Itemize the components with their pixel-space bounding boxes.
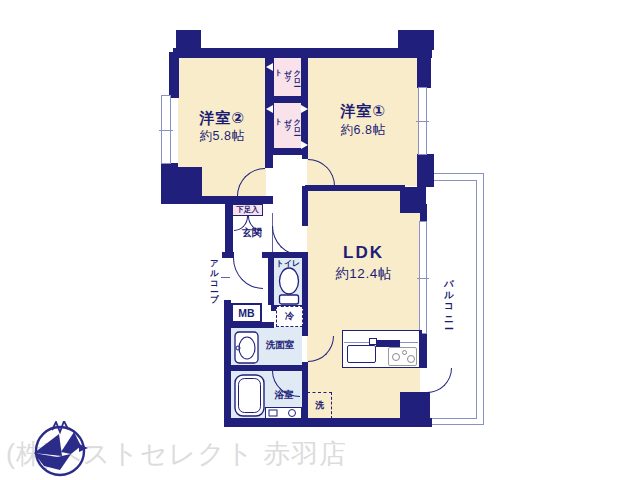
closet-notch <box>301 141 308 149</box>
alcove-label: アルコーブ <box>209 254 219 298</box>
closet-notch <box>266 105 273 113</box>
wall-segment <box>224 418 432 427</box>
entrance-label: 玄関 <box>233 227 271 239</box>
bathtub-icon <box>234 374 265 417</box>
bedroom1-window <box>418 87 427 155</box>
washroom-label: 洗面室 <box>257 340 303 351</box>
washbasin-icon <box>234 331 259 364</box>
refrigerator-space: 冷 <box>276 306 303 327</box>
wall-segment <box>176 30 201 50</box>
bathroom-label: 浴室 <box>262 390 306 401</box>
front-door <box>233 258 263 289</box>
bedroom1-area: 約6.8帖 <box>307 123 419 137</box>
wall-segment <box>169 52 179 98</box>
closet-lower: クローゼット <box>273 102 302 149</box>
ldk-floor <box>307 191 420 419</box>
meter-box-label: MB <box>238 307 254 319</box>
bedroom2-area: 約5.8帖 <box>178 129 266 143</box>
wall-segment <box>224 300 231 422</box>
bath-vanity-icon <box>265 407 302 419</box>
toilet-label: トイレ <box>274 259 302 268</box>
washer-space: 洗 <box>307 392 332 419</box>
toilet-icon <box>277 266 301 308</box>
bedroom1-name: 洋室① <box>307 102 419 119</box>
kitchen-sink <box>347 345 376 363</box>
wall-segment <box>265 196 273 204</box>
meter-box: MB <box>231 303 262 323</box>
closet-upper: クローゼット <box>273 57 302 97</box>
kitchen-divider <box>376 340 400 347</box>
stove-burner-icon <box>402 350 407 355</box>
wall-segment <box>420 204 427 221</box>
bestselect-crane-logo <box>29 421 89 479</box>
closet-lower-label: クローゼット <box>273 113 302 139</box>
wall-segment <box>176 196 273 204</box>
ldk-name: LDK <box>307 243 420 263</box>
refrigerator-label: 冷 <box>285 310 294 323</box>
wall-segment <box>417 55 431 88</box>
alcove-pointer-line <box>221 277 230 278</box>
closet-upper-label: クローゼット <box>273 64 302 90</box>
shoe-cabinet: 下足入 <box>232 204 263 216</box>
ldk-window <box>419 221 427 334</box>
stove-burner-icon <box>407 355 415 363</box>
bedroom2-name: 洋室② <box>178 109 266 126</box>
wall-segment <box>302 186 308 226</box>
ldk-area: 約12.4帖 <box>307 266 420 282</box>
shoe-cabinet-label: 下足入 <box>236 205 259 215</box>
wall-segment <box>398 30 434 50</box>
washer-label: 洗 <box>315 399 324 412</box>
window-tick <box>159 130 173 131</box>
window-tick <box>416 121 429 122</box>
wall-segment <box>417 154 434 187</box>
closet-notch <box>266 63 273 71</box>
stove-burner-icon <box>392 353 400 361</box>
balcony-label: バルコニー <box>443 272 454 325</box>
bedroom2-window <box>161 95 171 164</box>
floor-plan: クローゼット クローゼット 下足入 MB 冷 洗 PS <box>0 0 640 480</box>
